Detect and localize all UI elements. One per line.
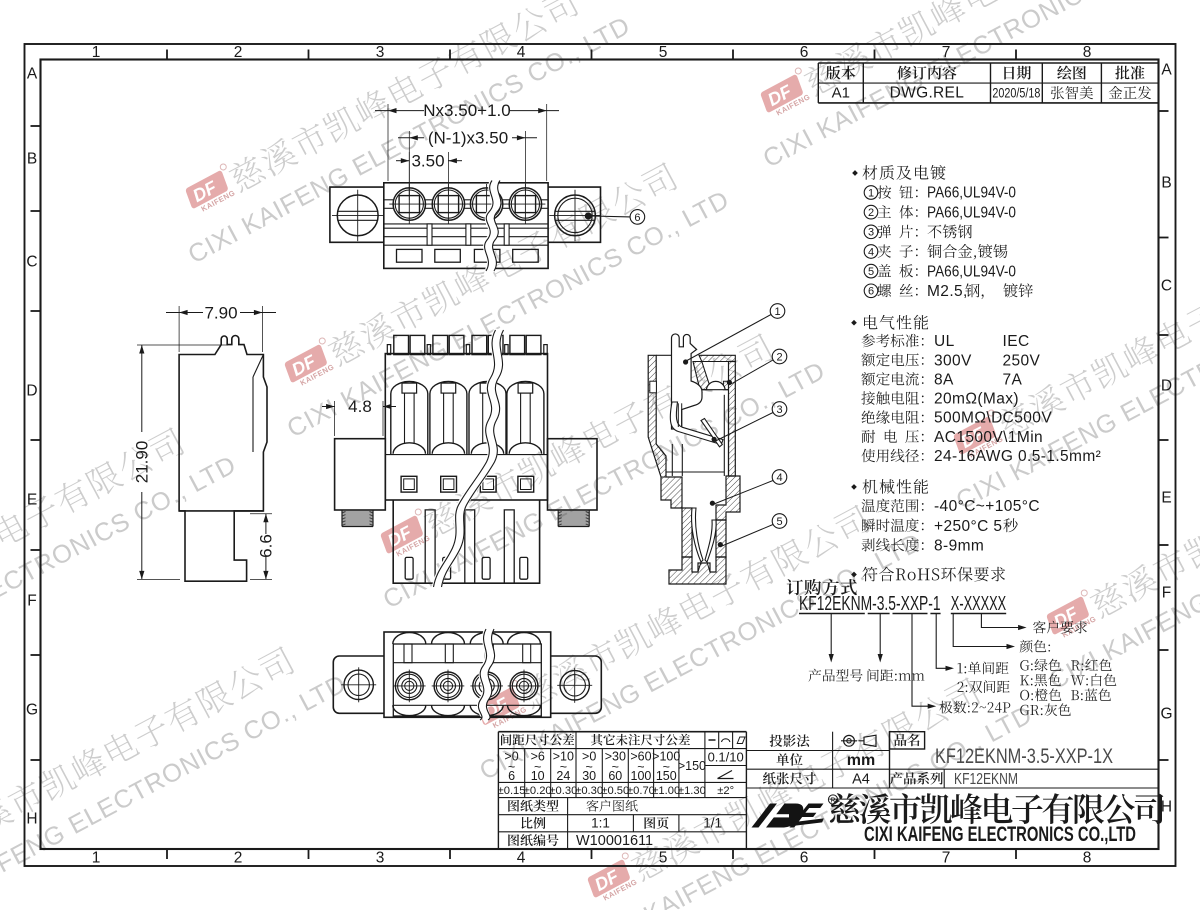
svg-text:D: D: [26, 383, 37, 400]
svg-text:3: 3: [376, 850, 385, 867]
svg-text:24: 24: [556, 769, 570, 783]
svg-text:UL: UL: [934, 333, 955, 350]
svg-text:1: 1: [92, 850, 101, 867]
svg-text:8: 8: [1083, 850, 1092, 867]
svg-text:KF12EKNM-3.5-XXP-1: KF12EKNM-3.5-XXP-1: [799, 593, 941, 615]
svg-text:±0.50: ±0.50: [601, 785, 629, 797]
svg-text:PA66,UL94V-0: PA66,UL94V-0: [927, 263, 1016, 280]
svg-text:E: E: [27, 492, 37, 509]
svg-text:+250°C 5: +250°C 5: [934, 518, 1002, 535]
svg-text:1/1: 1/1: [703, 816, 722, 831]
svg-text:±2°: ±2°: [717, 785, 734, 797]
svg-text:B: B: [1161, 175, 1171, 192]
svg-text:5: 5: [776, 516, 782, 528]
svg-text:G: G: [26, 702, 38, 719]
svg-text:5: 5: [659, 44, 668, 61]
svg-text:±1.00: ±1.00: [652, 785, 680, 797]
svg-text:4: 4: [517, 44, 526, 61]
svg-text:3: 3: [868, 227, 874, 239]
svg-text:1:1: 1:1: [591, 816, 610, 831]
svg-text:IEC: IEC: [1003, 333, 1030, 350]
svg-text:A: A: [27, 66, 38, 83]
svg-text:±1.30: ±1.30: [678, 785, 706, 797]
svg-text:G: G: [1160, 706, 1172, 723]
svg-text:A1: A1: [832, 85, 850, 102]
svg-text:6: 6: [800, 44, 809, 61]
svg-text:4: 4: [868, 246, 874, 258]
svg-text:6: 6: [508, 769, 515, 783]
svg-text:2: 2: [868, 207, 874, 219]
svg-text:PA66,UL94V-0: PA66,UL94V-0: [927, 185, 1016, 202]
svg-text:CIXI KAIFENG ELECTRONICS CO.,L: CIXI KAIFENG ELECTRONICS CO.,LTD: [864, 822, 1136, 846]
svg-text:4.8: 4.8: [348, 397, 372, 416]
svg-text:A4: A4: [852, 772, 870, 788]
svg-text:0.1/10: 0.1/10: [708, 750, 744, 765]
svg-text:1: 1: [774, 306, 780, 318]
svg-text:1: 1: [868, 187, 874, 199]
svg-text:24-16AWG 0.5-1.5mm²: 24-16AWG 0.5-1.5mm²: [934, 448, 1101, 465]
svg-text:7.90: 7.90: [204, 303, 237, 322]
svg-text:6: 6: [800, 850, 809, 867]
svg-text:6.6: 6.6: [257, 534, 276, 558]
svg-text:D: D: [1161, 378, 1172, 395]
svg-text:4: 4: [517, 850, 526, 867]
svg-text:20mΩ(Max): 20mΩ(Max): [934, 391, 1019, 408]
svg-text:21.90: 21.90: [133, 441, 152, 484]
svg-text:>150: >150: [678, 759, 706, 773]
svg-text:(N-1)x3.50: (N-1)x3.50: [428, 128, 508, 147]
svg-text:±0.30: ±0.30: [549, 785, 577, 797]
svg-text:60: 60: [608, 769, 622, 783]
svg-text:-40°C~+105°C: -40°C~+105°C: [934, 498, 1040, 515]
svg-text:F: F: [1162, 585, 1171, 602]
svg-text:250V: 250V: [1003, 352, 1041, 369]
svg-text:5: 5: [659, 850, 668, 867]
svg-text:H: H: [26, 811, 37, 828]
svg-text:3: 3: [376, 44, 385, 61]
svg-text:KF12EKNM-3.5-XXP-1X: KF12EKNM-3.5-XXP-1X: [935, 744, 1113, 768]
svg-text:8: 8: [1083, 44, 1092, 61]
svg-text:4: 4: [776, 472, 782, 484]
svg-text:AC1500V\1Min: AC1500V\1Min: [934, 429, 1043, 446]
svg-text:M2.5,: M2.5,: [927, 283, 968, 300]
svg-text:3.50: 3.50: [411, 151, 444, 170]
svg-text:8A: 8A: [934, 371, 954, 388]
svg-text:KF12EKNM: KF12EKNM: [954, 771, 1018, 788]
svg-text:DWG.REL: DWG.REL: [890, 85, 965, 102]
svg-text:30: 30: [582, 769, 596, 783]
svg-text:mm: mm: [847, 752, 875, 769]
svg-text:8-9mm: 8-9mm: [934, 537, 984, 554]
svg-text:B: B: [27, 151, 37, 168]
svg-text:±0.15: ±0.15: [498, 785, 526, 797]
svg-text:100: 100: [631, 769, 652, 783]
svg-text:A: A: [1161, 62, 1172, 79]
svg-text:C: C: [1161, 278, 1172, 295]
svg-text:Nx3.50+1.0: Nx3.50+1.0: [423, 101, 510, 120]
svg-text:±0.30: ±0.30: [575, 785, 603, 797]
svg-text:±0.70: ±0.70: [627, 785, 655, 797]
svg-text:H: H: [1161, 799, 1172, 816]
svg-text:2: 2: [234, 850, 243, 867]
svg-text:2: 2: [776, 351, 782, 363]
svg-text:6: 6: [634, 212, 640, 224]
svg-text:±0.20: ±0.20: [524, 785, 552, 797]
svg-text:F: F: [27, 593, 36, 610]
svg-text:7: 7: [942, 44, 951, 61]
svg-text:500MΩ\DC500V: 500MΩ\DC500V: [934, 410, 1052, 427]
svg-text:X-XXXXX: X-XXXXX: [951, 593, 1006, 615]
svg-text:1: 1: [92, 44, 101, 61]
svg-text:300V: 300V: [934, 352, 972, 369]
svg-text:E: E: [1161, 490, 1171, 507]
svg-text:2020/5/18: 2020/5/18: [992, 85, 1040, 101]
svg-text:5: 5: [868, 266, 874, 278]
svg-text:6: 6: [868, 286, 874, 298]
svg-text:PA66,UL94V-0: PA66,UL94V-0: [927, 204, 1016, 221]
svg-text:150: 150: [656, 769, 677, 783]
svg-text:10: 10: [531, 769, 545, 783]
svg-text:7A: 7A: [1003, 371, 1023, 388]
svg-text:3: 3: [776, 404, 782, 416]
svg-text:7: 7: [942, 850, 951, 867]
svg-text:W10001611: W10001611: [576, 833, 653, 849]
svg-text:2: 2: [234, 44, 243, 61]
svg-text:C: C: [26, 254, 37, 271]
